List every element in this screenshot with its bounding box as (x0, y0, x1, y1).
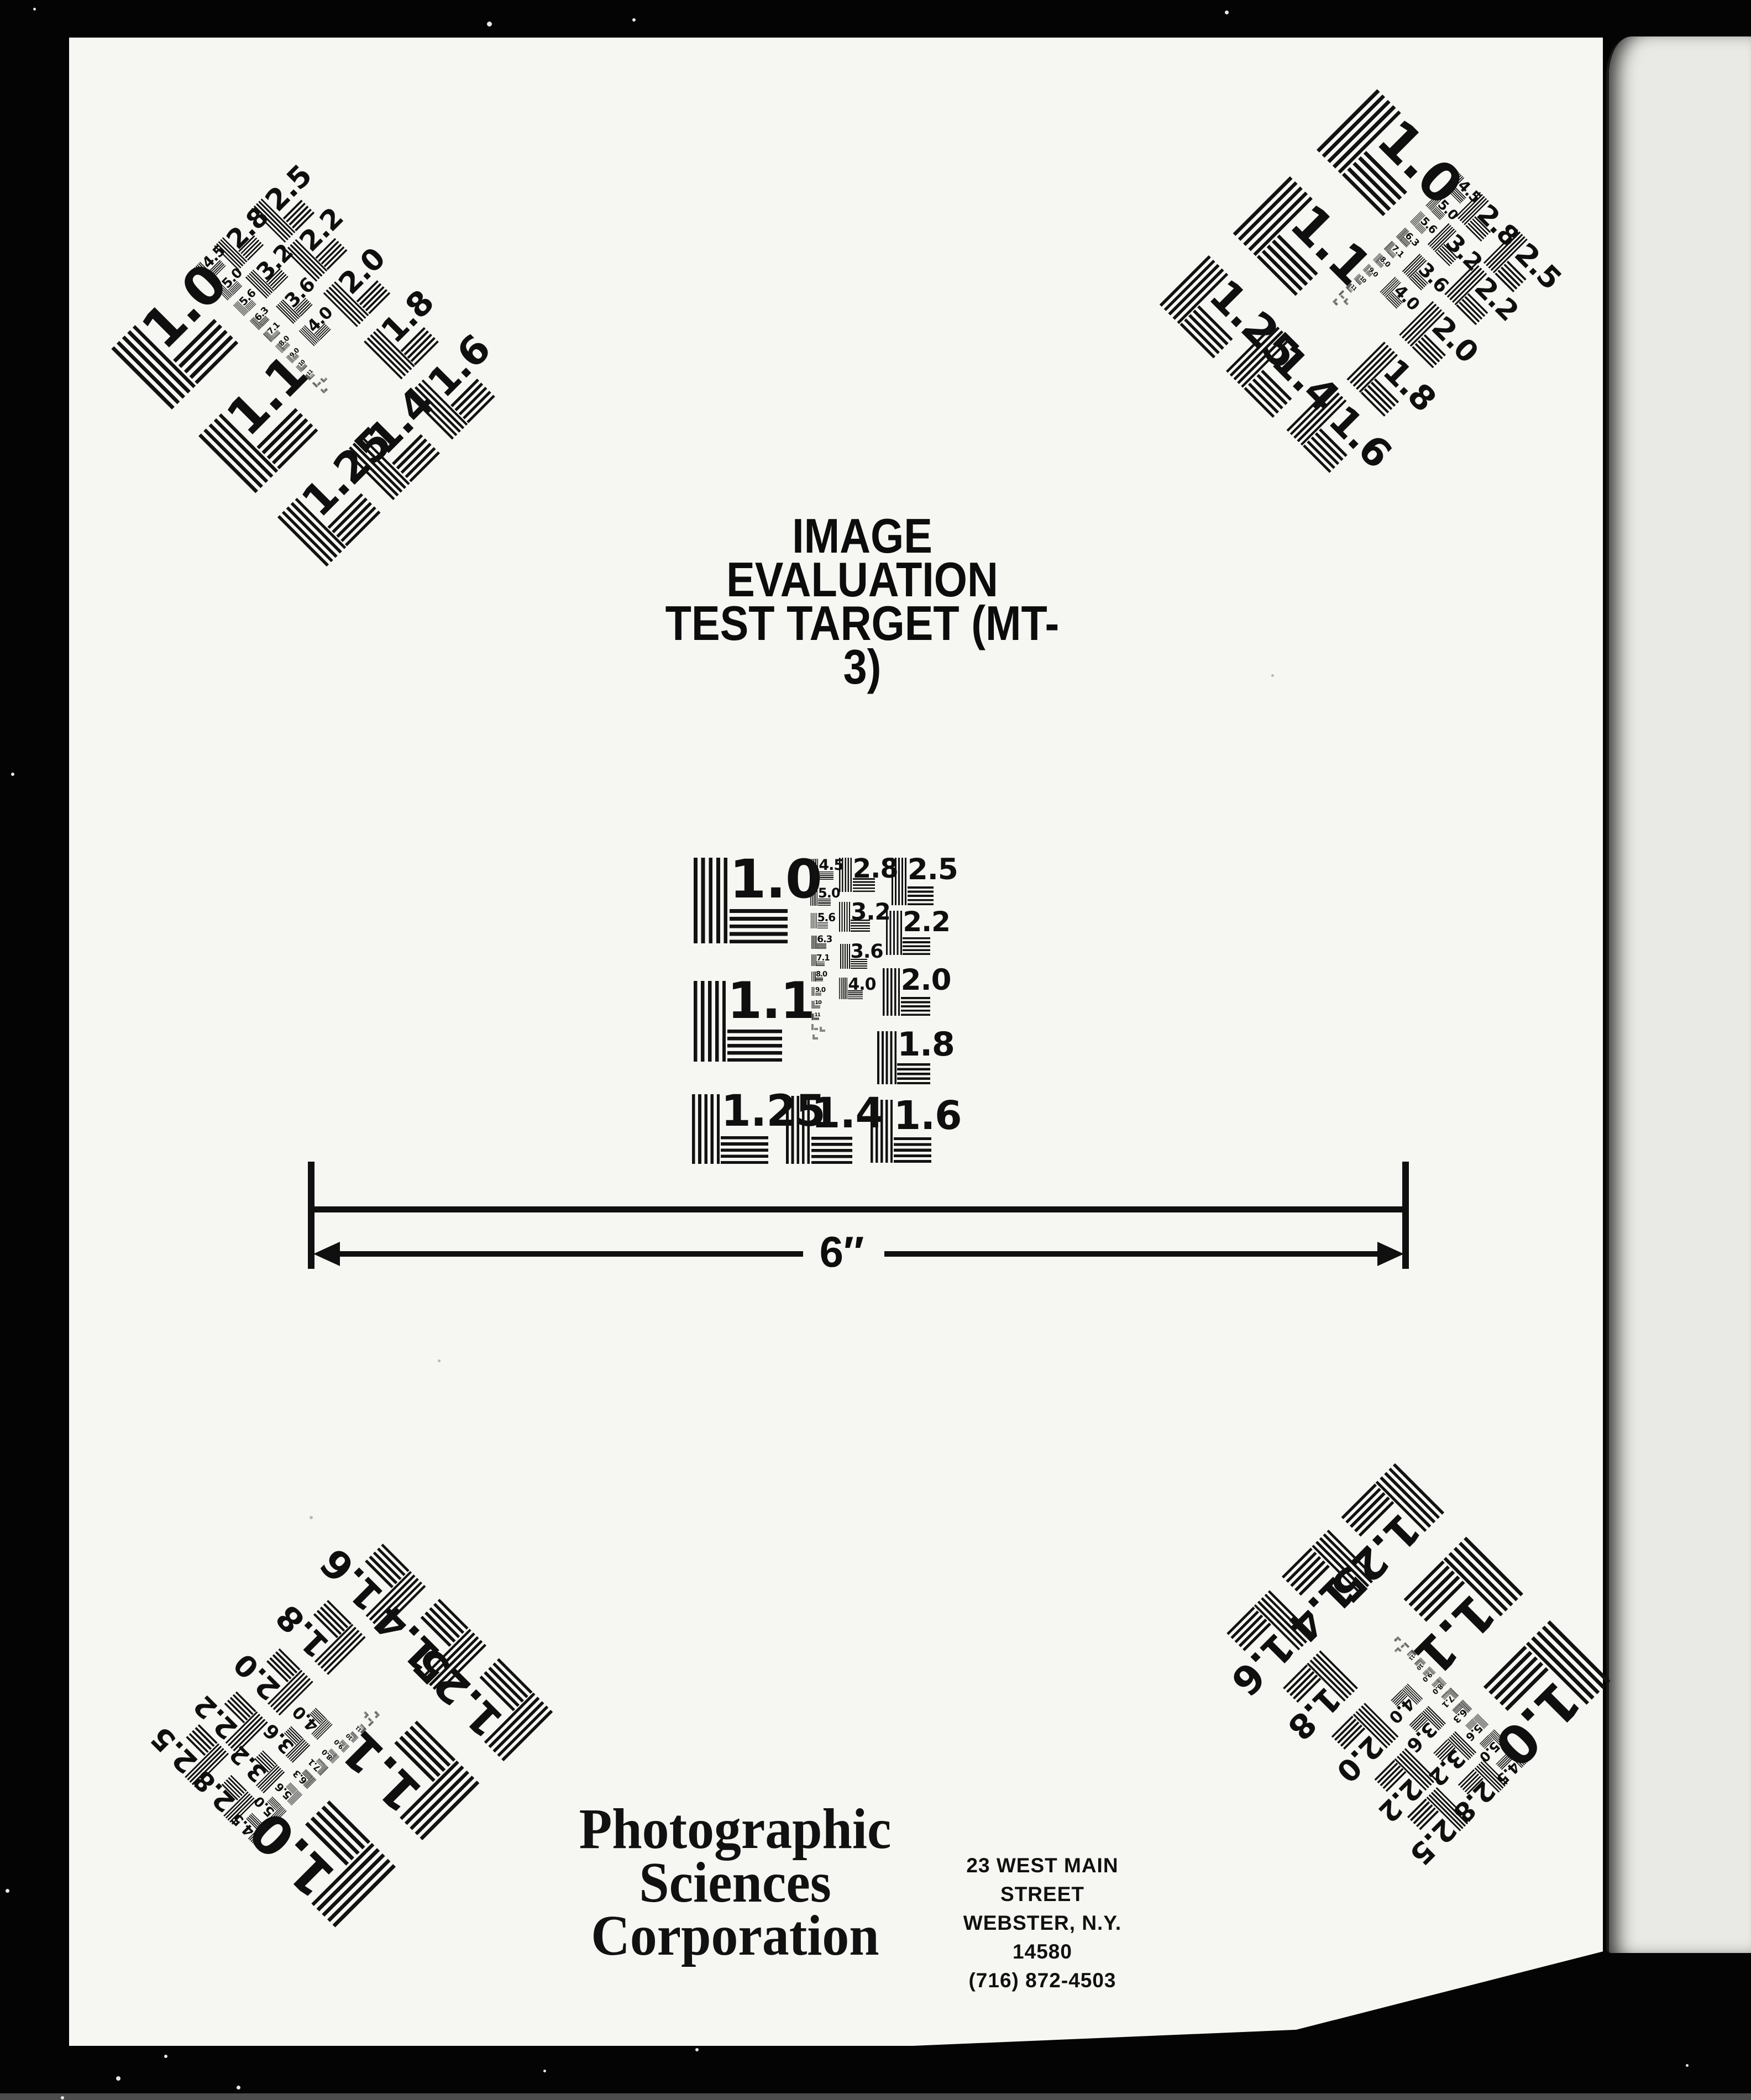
resolution-number: 5.0 (818, 886, 840, 900)
horizontal-bars (324, 388, 328, 392)
pattern-element (1343, 298, 1350, 305)
dust-speck (543, 2070, 546, 2072)
dust-speck (237, 2086, 240, 2089)
ruler-arrowhead-left-icon (313, 1242, 340, 1266)
company-line-1: Photographic (569, 1803, 901, 1856)
vertical-bars (811, 936, 817, 949)
resolution-number: 2.5 (908, 855, 958, 884)
pattern-element: 4.0 (301, 1708, 333, 1740)
pattern-element: 2.2 (886, 911, 930, 955)
horizontal-bars (1334, 302, 1338, 306)
ruler-arrow-line-left (336, 1251, 803, 1257)
pattern-element: 2.8 (839, 858, 875, 892)
horizontal-bars (814, 1028, 818, 1030)
pattern-element (373, 1711, 380, 1718)
company-line-3: Corporation (569, 1909, 901, 1963)
pattern-element: 1.0 (694, 858, 788, 943)
vertical-bars (877, 1031, 897, 1084)
pattern-element: 1.25 (692, 1094, 768, 1164)
pattern-element: 6.3 (811, 936, 826, 949)
pattern-element: 4.0 (299, 314, 331, 347)
company-address: 23 WEST MAIN STREET WEBSTER, N.Y. 14580 … (932, 1851, 1153, 1995)
pattern-element (1333, 298, 1340, 306)
vertical-bars (694, 981, 726, 1062)
dust-speck (487, 22, 492, 27)
horizontal-bars (815, 993, 821, 996)
dust-speck (1225, 11, 1229, 14)
address-line-2: WEBSTER, N.Y. 14580 (932, 1909, 1153, 1966)
pattern-element: 7.1 (1384, 241, 1402, 259)
horizontal-bars (851, 959, 867, 969)
pattern-element: 3.6 (1409, 1706, 1445, 1742)
resolution-number: 7.1 (816, 954, 830, 962)
vertical-bars (811, 972, 816, 981)
pattern-element: 6.3 (1452, 1700, 1472, 1720)
horizontal-bars (721, 1136, 768, 1164)
vertical-bars (839, 978, 847, 999)
dust-speck (695, 2048, 699, 2051)
dust-speck (632, 18, 636, 22)
pattern-element: 4.0 (839, 978, 863, 999)
pattern-element: 9.0 (811, 987, 821, 996)
resolution-number: 4.5 (819, 858, 843, 873)
horizontal-bars (819, 872, 833, 880)
horizontal-bars (815, 1037, 818, 1039)
resolution-number: 2.0 (901, 965, 951, 995)
horizontal-bars (848, 990, 863, 999)
horizontal-bars (1401, 1644, 1405, 1649)
pattern-element: 3.6 (840, 944, 867, 969)
horizontal-bars (897, 1063, 930, 1084)
page-speck (438, 1359, 441, 1362)
horizontal-bars (1394, 1638, 1398, 1642)
vertical-bars (811, 1001, 815, 1009)
pattern-element: 1.6 (871, 1100, 931, 1163)
page-title: IMAGE EVALUATION TEST TARGET (MT-3) (663, 514, 1062, 689)
resolution-number: 5.6 (817, 912, 835, 923)
address-line-1: 23 WEST MAIN STREET (932, 1851, 1153, 1909)
horizontal-bars (816, 962, 825, 966)
horizontal-bars (323, 377, 327, 381)
horizontal-bars (317, 381, 321, 386)
resolution-number: 6.3 (817, 935, 832, 944)
pattern-element: 7.1 (311, 1758, 329, 1776)
vertical-bars (810, 888, 817, 906)
pattern-element (321, 386, 328, 393)
horizontal-bars (814, 1017, 819, 1020)
vertical-bars (811, 987, 815, 996)
dust-speck (61, 2096, 64, 2099)
pattern-element: 4.0 (1391, 1684, 1423, 1716)
vertical-bars (811, 913, 817, 928)
pattern-element: 1.8 (877, 1031, 930, 1084)
horizontal-bars (822, 1030, 825, 1032)
horizontal-bars (817, 943, 826, 949)
test-target-center: 1.01.11.251.41.61.82.02.22.52.83.23.64.0… (689, 851, 1032, 1177)
dust-speck (11, 773, 14, 776)
horizontal-bars (727, 1030, 782, 1062)
vertical-bars (786, 1096, 810, 1164)
pattern-element: 5.6 (811, 913, 828, 928)
ruler-arrowhead-right-icon (1377, 1242, 1404, 1266)
dust-speck (164, 2055, 167, 2058)
pattern-element: 11 (811, 1014, 819, 1020)
dust-speck (6, 1889, 9, 1893)
pattern-element: 7.1 (263, 325, 281, 343)
pattern-element (811, 1024, 818, 1030)
company-name: Photographic Sciences Corporation (569, 1803, 901, 1963)
pattern-element (1394, 1636, 1401, 1644)
pattern-element: 1.4 (786, 1096, 852, 1164)
company-line-2: Sciences (569, 1856, 901, 1910)
scanned-microfilm-frame: { "document": { "title_line1": "IMAGE EV… (0, 0, 1751, 2100)
dust-speck (116, 2076, 120, 2081)
resolution-number: 1.6 (894, 1096, 962, 1135)
horizontal-bars (894, 1137, 931, 1163)
horizontal-bars (1394, 1649, 1398, 1652)
horizontal-bars (851, 920, 870, 932)
pattern-element: 8.0 (811, 972, 823, 981)
title-line-2: TEST TARGET (MT-3) (663, 601, 1062, 689)
ruler-length-label: 6″ (800, 1227, 883, 1277)
resolution-number: 1.8 (897, 1028, 954, 1061)
vertical-bars (871, 1100, 893, 1163)
vertical-bars (839, 902, 850, 932)
horizontal-bars (901, 997, 930, 1016)
pattern-element (1394, 1647, 1402, 1654)
dust-speck (33, 8, 36, 11)
vertical-bars (840, 944, 850, 969)
vertical-bars (883, 968, 900, 1016)
pattern-element: 7.1 (1441, 1688, 1459, 1705)
page-speck (310, 1516, 313, 1519)
pattern-element: 1.1 (694, 981, 782, 1062)
pattern-element: 2.0 (883, 968, 930, 1016)
address-line-3: (716) 872-4503 (932, 1966, 1153, 1995)
vertical-bars (811, 1014, 814, 1020)
resolution-number: 2.2 (903, 908, 950, 936)
page-speck (1271, 674, 1274, 677)
vertical-bars (692, 1094, 720, 1164)
resolution-number: 1.1 (727, 976, 815, 1026)
resolution-number: 1.0 (730, 853, 822, 906)
pattern-element: 6.3 (296, 1769, 316, 1789)
horizontal-bars (730, 909, 788, 943)
pattern-element: 6.3 (1396, 228, 1416, 248)
pattern-element (320, 376, 327, 383)
horizontal-bars (811, 1137, 852, 1164)
next-page-edge (1606, 36, 1751, 1953)
vertical-bars (810, 859, 818, 880)
pattern-element: 4.5 (810, 859, 833, 880)
horizontal-bars (818, 899, 831, 906)
pattern-element: 10 (811, 1001, 820, 1009)
horizontal-bars (1345, 301, 1349, 305)
horizontal-bars (903, 937, 930, 955)
horizontal-bars (815, 1005, 820, 1009)
pattern-element: 7.1 (811, 954, 825, 966)
title-line-1: IMAGE EVALUATION (663, 514, 1062, 601)
ruler-top-line (314, 1206, 1402, 1212)
horizontal-bars (817, 922, 828, 928)
ruler-arrow-line-right (884, 1251, 1382, 1257)
pattern-element: 4.0 (1380, 277, 1412, 309)
vertical-bars (694, 858, 727, 943)
pattern-element: 5.0 (810, 888, 831, 906)
horizontal-bars (1340, 295, 1345, 299)
pattern-element (812, 1035, 818, 1039)
horizontal-bars (853, 878, 875, 892)
pattern-element (820, 1027, 825, 1032)
horizontal-bars (816, 978, 823, 981)
vertical-bars (811, 954, 816, 966)
pattern-element: 3.2 (839, 902, 870, 932)
dust-speck (1686, 2064, 1689, 2067)
scanner-bottom-bar (0, 2093, 1751, 2100)
horizontal-bars (908, 886, 934, 905)
